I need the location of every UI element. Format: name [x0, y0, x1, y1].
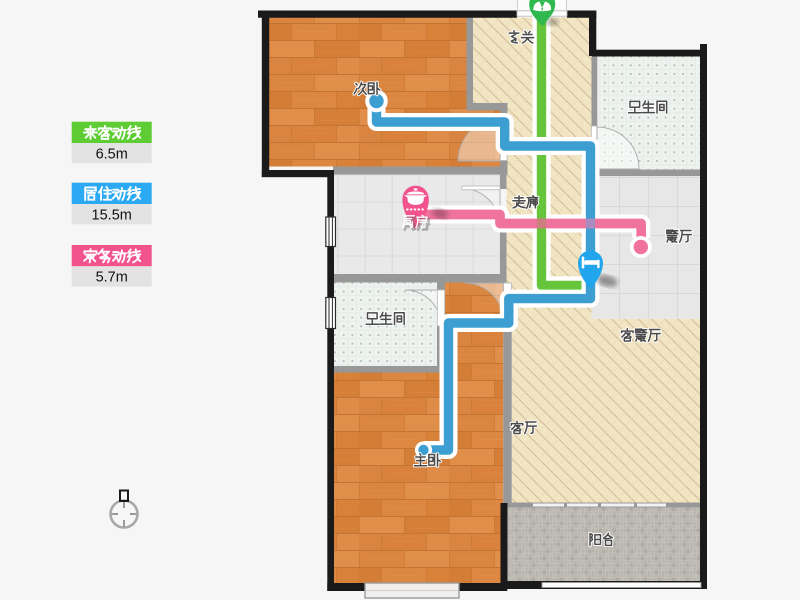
svg-text:15.5m: 15.5m [92, 208, 132, 224]
svg-text:6.5m: 6.5m [96, 147, 128, 163]
svg-text:5.7m: 5.7m [96, 270, 128, 286]
